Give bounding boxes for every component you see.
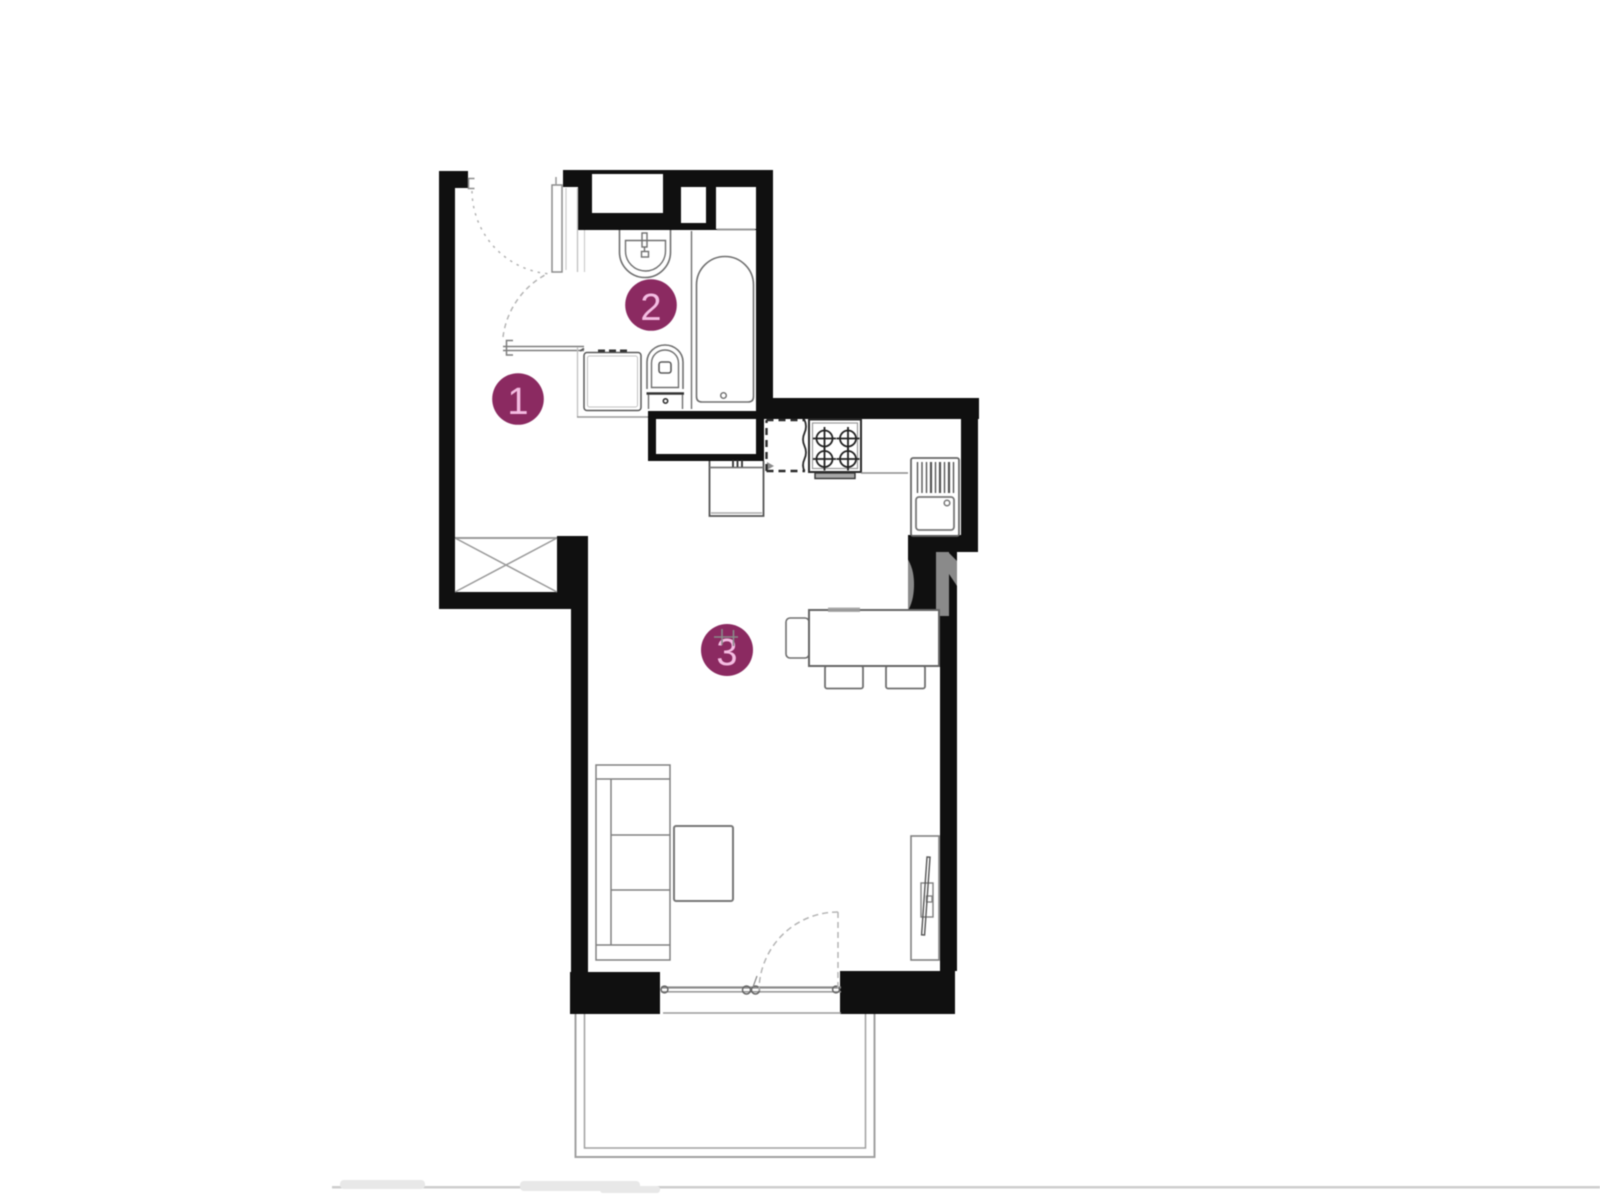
svg-text:2: 2 xyxy=(640,287,661,329)
svg-text:3: 3 xyxy=(716,632,737,674)
svg-text:1: 1 xyxy=(507,381,528,423)
